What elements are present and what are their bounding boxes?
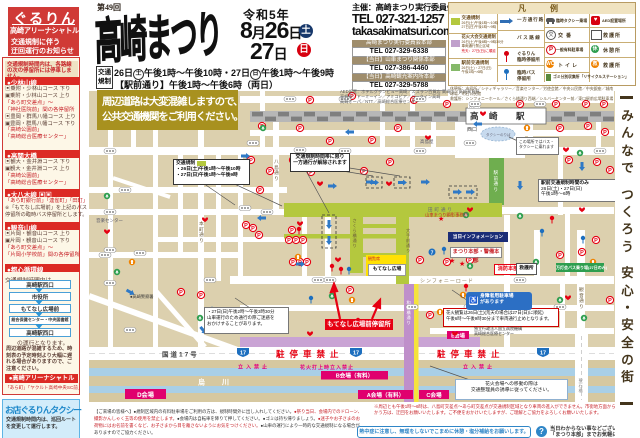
svg-text:C会場: C会場 [426,391,442,399]
svg-text:烏 川: 烏 川 [198,378,234,387]
svg-text:★: ★ [459,260,465,268]
svg-text:駐停車禁止: 駐停車禁止 [276,349,344,359]
svg-text:●高崎警察署: ●高崎警察署 [130,293,153,300]
svg-text:高: 高 [470,111,479,121]
svg-text:高島屋: 高島屋 [420,138,434,145]
svg-text:D会場: D会場 [137,391,155,399]
svg-text:立入禁止: 立入禁止 [238,364,270,371]
svg-text:国道17号: 国道17号 [162,350,199,359]
svg-text:7: 7 [431,251,434,257]
svg-text:西口: 西口 [467,127,477,133]
svg-text:A会場（有料）: A会場（有料） [367,391,405,399]
svg-text:駅: 駅 [516,111,525,121]
svg-text:タクシーのりば: タクシーのりば [486,132,511,137]
svg-text:音楽センター: 音楽センター [96,217,123,224]
svg-text:駐停車禁止: 駐停車禁止 [437,349,505,359]
svg-text:花火打上時立入禁止: 花火打上時立入禁止 [300,364,354,371]
svg-text:山車まつり顕彰事務所: 山車まつり顕彰事務所 [425,212,469,219]
svg-text:崎: 崎 [489,111,498,121]
svg-text:立入禁止: 立入禁止 [463,364,495,371]
svg-text:シンフォニーロード: シンフォニーロード [420,279,474,285]
svg-text:★: ★ [449,257,455,265]
svg-text:B会場（有料）: B会場（有料） [336,372,374,380]
